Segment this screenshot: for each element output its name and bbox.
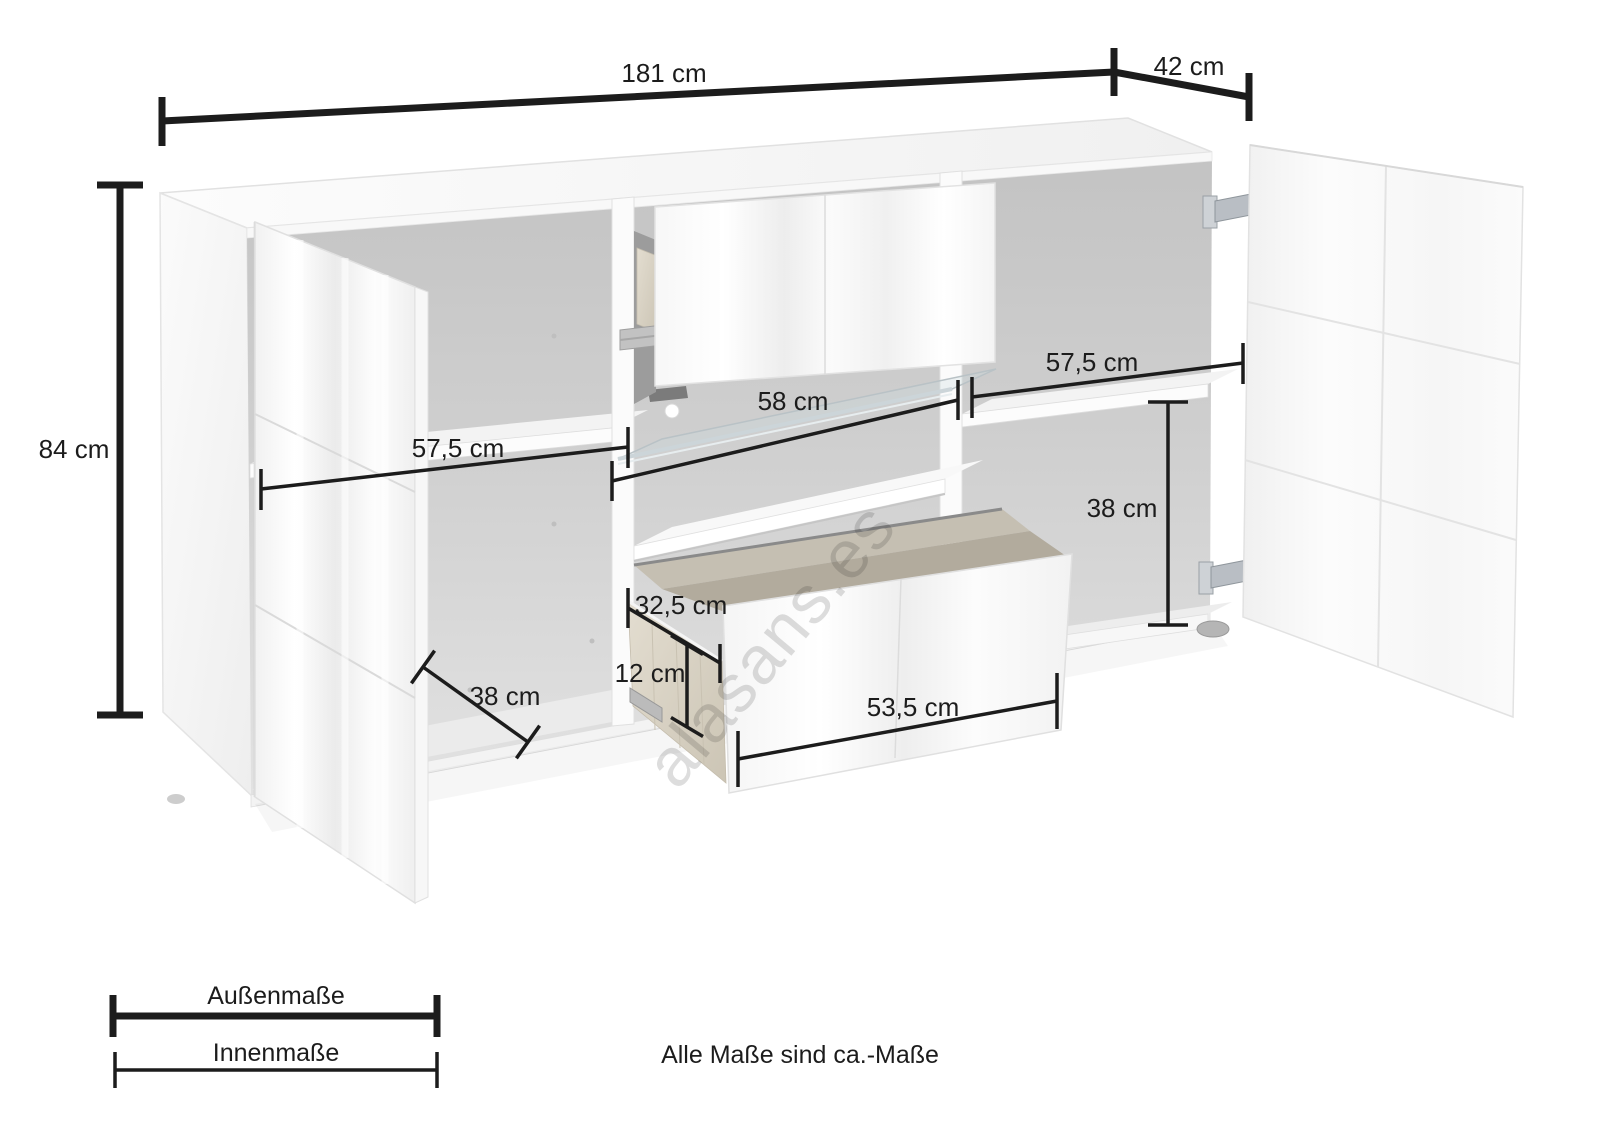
left-door-panel [255,222,415,903]
product-dimension-diagram: alasans.es 181 cm 42 cm 84 cm 57,5 cm [0,0,1600,1130]
dim-width-total-label: 181 cm [621,58,706,88]
right-door [1243,145,1523,717]
dim-drawer-inner-depth-label: 32,5 cm [635,590,728,620]
dim-right-inner-width-label: 57,5 cm [1046,347,1139,377]
legend: Außenmaße Innenmaße Alle Maße sind ca.-M… [113,982,939,1088]
dim-right-inner-height-label: 38 cm [1087,493,1158,523]
foot-front-right [1197,621,1229,637]
dim-height-total-label: 84 cm [39,434,110,464]
legend-inner: Innenmaße [115,1039,437,1088]
dim-left-inner-depth-label: 38 cm [470,681,541,711]
footnote: Alle Maße sind ca.-Maße [661,1041,939,1069]
left-door [255,222,428,903]
dim-drawer-inner-width-label: 53,5 cm [867,692,960,722]
dim-drawer-inner-height-label: 12 cm [615,658,686,688]
legend-inner-label: Innenmaße [213,1039,339,1067]
dim-height-total: 84 cm [39,185,143,715]
dim-left-inner-width-label: 57,5 cm [412,433,505,463]
dim-middle-inner-width-label: 58 cm [758,386,829,416]
dim-depth-total-label: 42 cm [1154,51,1225,81]
legend-outer-label: Außenmaße [207,982,345,1010]
dimension-diagram-svg: alasans.es 181 cm 42 cm 84 cm 57,5 cm [0,0,1600,1130]
right-door-panel [1243,145,1523,717]
foot-front-left [167,794,185,804]
dim-depth-total: 42 cm [1114,51,1249,121]
legend-outer: Außenmaße [113,982,437,1037]
cabinet-left-side-panel [160,193,253,797]
left-door-edge [415,287,428,903]
top-drawer-side [637,248,657,332]
